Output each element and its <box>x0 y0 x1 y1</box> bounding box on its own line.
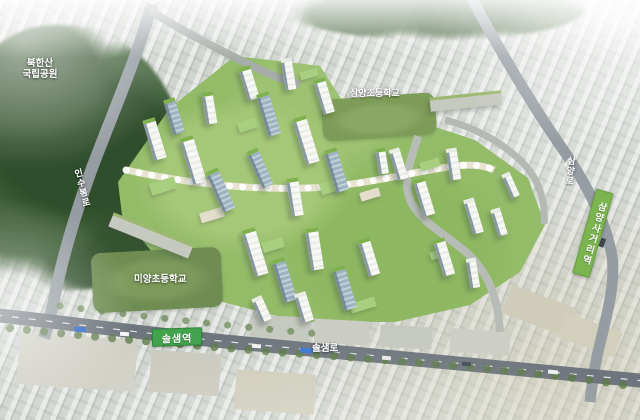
label-park-line1: 북한산 <box>8 58 72 69</box>
roads-and-details-layer <box>0 0 640 420</box>
label-solsaem-ro: 솔샘로 <box>312 340 338 354</box>
site-north-road <box>150 10 300 84</box>
solsaem-station-badge: 솔샘역 <box>152 327 202 347</box>
pedestrian-spine <box>126 165 494 188</box>
label-miyang-elementary-school: 미양초등학교 <box>134 271 186 285</box>
label-park-line2: 국립공원 <box>8 69 72 80</box>
label-bukhansan-national-park: 북한산 국립공원 <box>8 58 72 80</box>
label-samyang-elementary-school: 삼양초등학교 <box>350 86 400 99</box>
aerial-masterplan-rendering: 북한산 국립공원 인수봉로 삼양초등학교 삼양로 삼양사거리역 미양초등학교 솔… <box>0 0 640 420</box>
